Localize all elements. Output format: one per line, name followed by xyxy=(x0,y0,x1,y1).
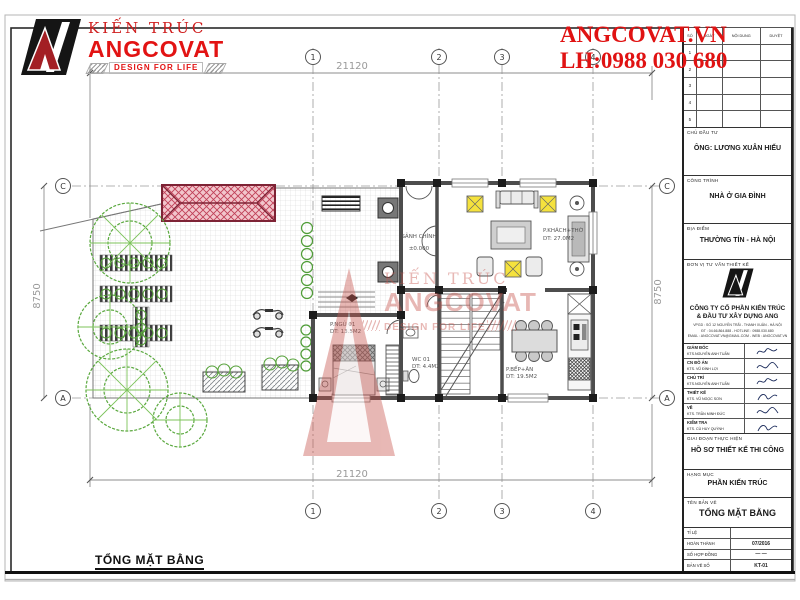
svg-text:2: 2 xyxy=(436,507,441,516)
location-section: ĐỊA ĐIỂM THƯỜNG TÍN - HÀ NỘI xyxy=(684,224,791,260)
design-firm-label: ĐƠN VỊ TƯ VẤN THIẾT KẾ xyxy=(684,260,791,267)
red-roof-structure xyxy=(162,185,275,221)
logo-tagline: DESIGN FOR LIFE xyxy=(88,62,224,74)
company-contact-3: EMAIL : ANGCOVAT.VN@GMAIL.COM - WEB : AN… xyxy=(684,334,791,339)
investor-name: ÔNG: LƯƠNG XUÂN HIẾU xyxy=(684,145,791,154)
project-section: CÔNG TRÌNH NHÀ Ở GIA ĐÌNH xyxy=(684,176,791,224)
logo-company-name: ANGCOVAT xyxy=(88,37,224,61)
tagline-text: DESIGN FOR LIFE xyxy=(109,62,203,74)
signature-row: VẼ KTS. TRẦN MINH ĐỨC xyxy=(684,404,791,419)
signature-row: GIÁM ĐỐC KTS.NGUYỄN ANH TUẤN xyxy=(684,344,791,359)
website-text: ANGCOVAT.VN xyxy=(560,22,798,48)
info-table: TỈ LỆ HOÀN THÀNH 07/2016 SỐ HỢP ĐỒNG — —… xyxy=(684,528,791,571)
info-row: SỐ HỢP ĐỒNG — — xyxy=(684,550,791,561)
signature-scribble xyxy=(745,359,791,373)
signature-scribble xyxy=(745,344,791,358)
drawing-name-section: TÊN BẢN VẼ TỔNG MẶT BẰNG xyxy=(684,498,791,528)
company-name-line2: & ĐẦU TƯ XÂY DỰNG ANG xyxy=(684,313,791,321)
revision-row: 3 xyxy=(684,78,791,95)
watermark-line1: KIẾN TRÚC xyxy=(384,266,508,288)
category-value: PHẦN KIẾN TRÚC xyxy=(684,480,791,489)
watermark-line3: DESIGN FOR LIFE xyxy=(384,322,486,333)
signature-row: KIỂM TRA KTS. CÙ HUY QUỲNH xyxy=(684,419,791,434)
svg-text:C: C xyxy=(664,182,670,191)
site-plan-drawing: 21120 21120 8750 8750 xyxy=(0,0,800,600)
drawing-name-value: TỔNG MẶT BẰNG xyxy=(684,508,791,519)
phase-value: HỒ SƠ THIẾT KẾ THI CÔNG xyxy=(684,447,791,456)
company-logo: KIẾN TRÚC ANGCOVAT DESIGN FOR LIFE xyxy=(20,18,230,82)
drawing-sheet: 21120 21120 8750 8750 xyxy=(0,0,800,600)
signature-scribble xyxy=(745,389,791,403)
svg-text:C: C xyxy=(60,182,66,191)
room-area-wc: DT: 4.4M2 xyxy=(412,364,440,370)
signature-row: CN ĐỒ ÁN KTS. VŨ ĐÌNH LỢI xyxy=(684,359,791,374)
company-contact-1: VPGD : SỐ 12 NGUYỄN TRÃI - THANH XUÂN - … xyxy=(684,323,791,328)
room-area-bep: DT: 19.5M2 xyxy=(506,374,537,380)
investor-label: CHỦ ĐẦU TƯ xyxy=(684,128,791,135)
signature-scribble xyxy=(745,374,791,388)
signature-row: CHỦ TRÌ KTS.NGUYỄN ANH TUẤN xyxy=(684,374,791,389)
project-name: NHÀ Ở GIA ĐÌNH xyxy=(684,193,791,202)
location-name: THƯỜNG TÍN - HÀ NỘI xyxy=(684,237,791,246)
info-row: TỈ LỆ xyxy=(684,528,791,539)
svg-text:4: 4 xyxy=(590,507,595,516)
phase-label: GIAI ĐOẠN THỰC HIỆN xyxy=(684,434,791,441)
sheet-title: TỔNG MẶT BẰNG xyxy=(95,553,204,570)
dim-top-label: 21120 xyxy=(336,61,368,72)
signature-scribble xyxy=(745,419,791,434)
signatures-section: GIÁM ĐỐC KTS.NGUYỄN ANH TUẤN CN ĐỒ ÁN KT… xyxy=(684,344,791,434)
location-label: ĐỊA ĐIỂM xyxy=(684,224,791,231)
title-block: SỐ NGÀY NỘI DUNG DUYỆT 1 2 3 4 5 CHỦ ĐẦU… xyxy=(682,28,793,571)
svg-text:A: A xyxy=(60,394,66,403)
room-label-wc: WC 01 xyxy=(412,357,430,363)
investor-section: CHỦ ĐẦU TƯ ÔNG: LƯƠNG XUÂN HIẾU xyxy=(684,128,791,176)
company-name-line1: CÔNG TY CỔ PHẦN KIẾN TRÚC xyxy=(684,305,791,313)
angcovat-logo-icon-small xyxy=(720,268,756,298)
category-label: HẠNG MỤC xyxy=(684,470,791,477)
room-area-khach: DT: 27.0M2 xyxy=(543,236,574,242)
hotline-text: LH:0988 030 680 xyxy=(560,48,798,74)
phase-section: GIAI ĐOẠN THỰC HIỆN HỒ SƠ THIẾT KẾ THI C… xyxy=(684,434,791,470)
info-row: BẢN VẼ SỐ KT-01 xyxy=(684,560,791,571)
svg-text:3: 3 xyxy=(499,507,504,516)
info-row: HOÀN THÀNH 07/2016 xyxy=(684,539,791,550)
svg-text:3: 3 xyxy=(499,53,504,62)
project-label: CÔNG TRÌNH xyxy=(684,176,791,183)
room-level-sanh: ±0.000 xyxy=(409,246,430,252)
room-label-bep: P.BẾP+ĂN xyxy=(506,365,533,373)
dim-bottom-label: 21120 xyxy=(336,469,368,480)
svg-text:2: 2 xyxy=(436,53,441,62)
signature-scribble xyxy=(745,404,791,418)
svg-text:A: A xyxy=(664,394,670,403)
signature-row: THIẾT KẾ KTS. VŨ NGỌC SƠN xyxy=(684,389,791,404)
category-section: HẠNG MỤC PHẦN KIẾN TRÚC xyxy=(684,470,791,498)
tagline-hatch-right xyxy=(204,63,227,74)
svg-text:1: 1 xyxy=(310,53,315,62)
drawing-name-label: TÊN BẢN VẼ xyxy=(684,498,791,505)
logo-architecture-label: KIẾN TRÚC xyxy=(88,20,224,37)
watermark-line2: ANGCOVAT xyxy=(384,287,537,317)
pergola-louvre xyxy=(322,196,360,211)
dim-left-label: 8750 xyxy=(32,283,43,308)
svg-text:1: 1 xyxy=(310,507,315,516)
contact-overlay: ANGCOVAT.VN LH:0988 030 680 xyxy=(560,22,798,74)
design-firm-section: ĐƠN VỊ TƯ VẤN THIẾT KẾ CÔNG TY CỔ PHẦN K… xyxy=(684,260,791,344)
dim-right-label: 8750 xyxy=(653,279,664,304)
revision-row: 4 xyxy=(684,95,791,112)
room-label-khach: P.KHÁCH+THỜ xyxy=(543,227,584,234)
angcovat-logo-icon xyxy=(20,18,82,76)
tagline-hatch-left xyxy=(85,63,108,74)
revision-row: 5 xyxy=(684,111,791,127)
room-label-sanh: SẢNH CHÍNH xyxy=(401,232,436,240)
